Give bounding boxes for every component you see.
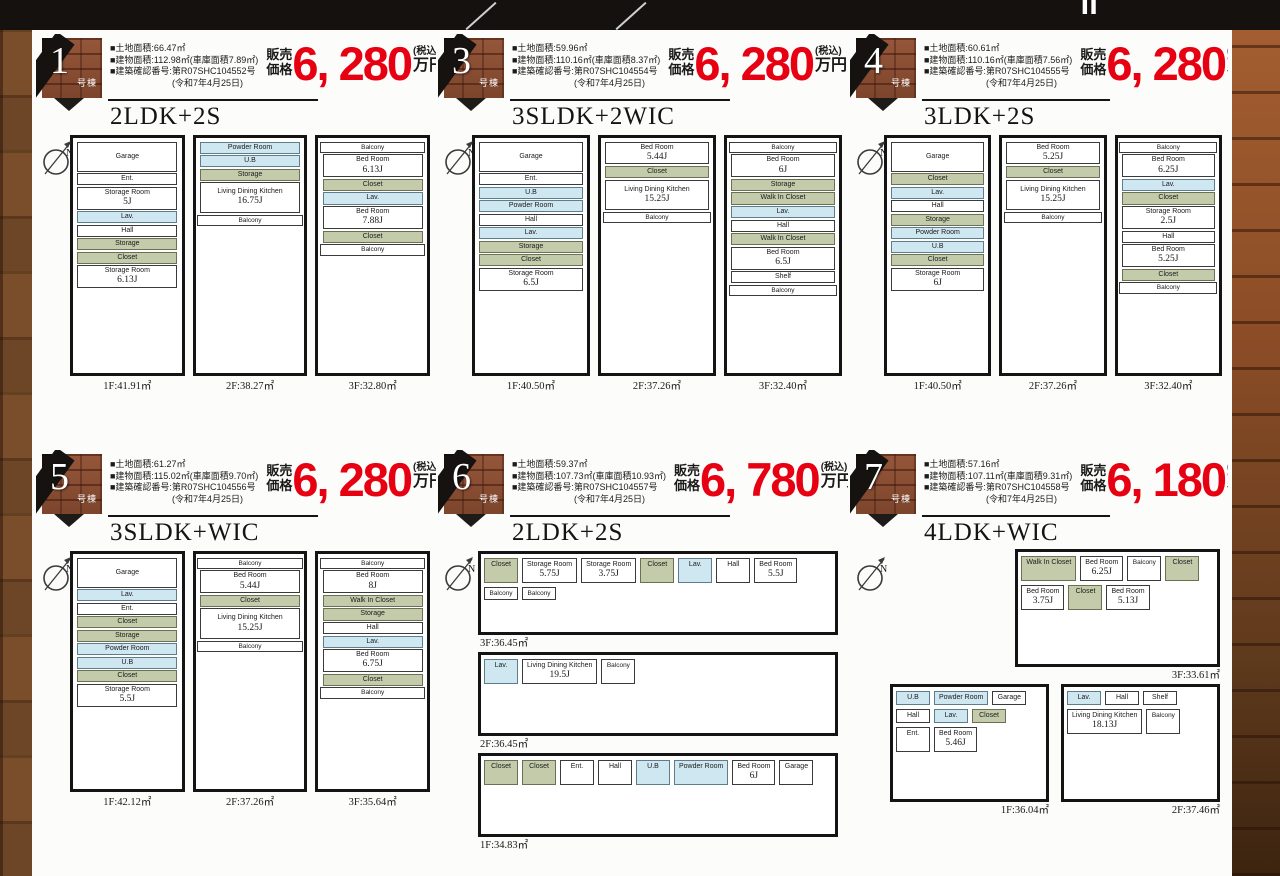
room-name: U.B bbox=[901, 694, 925, 702]
room: Hall bbox=[479, 214, 582, 226]
room-name: Garage bbox=[997, 694, 1021, 702]
room-name: Balcony bbox=[321, 560, 425, 567]
room-size: 16.75J bbox=[201, 196, 299, 207]
header-divider bbox=[510, 515, 730, 517]
room-size: 19.5J bbox=[527, 670, 592, 681]
price-tax-note: (税込) bbox=[821, 462, 848, 473]
room: Walk In Closet bbox=[731, 233, 834, 245]
room: Living Dining Kitchen18.13J bbox=[1067, 709, 1142, 734]
price-tax-note: (税込) bbox=[1227, 46, 1228, 57]
room-name: Balcony bbox=[1151, 712, 1175, 719]
room-name: Storage Room bbox=[586, 561, 631, 569]
price-block: 販売価格6, 280(税込)万円 bbox=[266, 458, 436, 503]
room: Closet bbox=[1165, 556, 1199, 581]
spec-line: (令和7年4月25日) bbox=[110, 78, 258, 90]
room-name: Balcony bbox=[198, 560, 302, 567]
svg-text:N: N bbox=[880, 564, 887, 575]
floor-area-caption: 2F:37.26㎡ bbox=[598, 376, 716, 393]
unit-label: 号棟 bbox=[891, 492, 911, 505]
room-size: 6.5J bbox=[732, 257, 833, 268]
balcony-area: Balcony bbox=[197, 215, 303, 226]
price-label-top: 販売 bbox=[1080, 48, 1106, 63]
room-name: Garage bbox=[892, 153, 983, 161]
room-name: Bed Room bbox=[939, 730, 972, 738]
room: Living Dining Kitchen19.5J bbox=[522, 659, 597, 684]
floor-plan: Powder RoomU.BStorageLiving Dining Kitch… bbox=[193, 135, 308, 393]
room: Closet bbox=[640, 558, 674, 583]
header-divider bbox=[108, 99, 318, 101]
price-block: 販売価格6, 180(税込)万円 bbox=[1080, 458, 1228, 503]
room-name: Closet bbox=[489, 561, 513, 569]
room-name: U.B bbox=[892, 243, 983, 251]
price-label-top: 販売 bbox=[668, 48, 694, 63]
room-name: Walk In Closet bbox=[1026, 559, 1071, 567]
room-size: 5.5J bbox=[78, 694, 176, 705]
room-name: Balcony bbox=[606, 662, 630, 669]
balcony-area: Balcony bbox=[601, 659, 635, 684]
floor-plans: GarageClosetLav.HallStoragePowder RoomU.… bbox=[884, 135, 1222, 393]
room-name: Lav. bbox=[78, 591, 176, 599]
price-unit: 万円 bbox=[413, 57, 436, 75]
price-block: 販売価格6, 280(税込)万円 bbox=[1080, 42, 1228, 87]
room-name: Bed Room bbox=[732, 156, 833, 164]
compass-icon: N bbox=[854, 552, 890, 594]
room-name: Powder Room bbox=[480, 202, 581, 210]
price-label-bottom: 価格 bbox=[266, 63, 292, 78]
room: Bed Room5.13J bbox=[1106, 585, 1149, 610]
balcony-area: Balcony bbox=[320, 687, 426, 698]
room: Closet bbox=[891, 173, 984, 185]
spec-line: ■建物面積:112.98㎡(車庫面積7.89㎡) bbox=[110, 55, 258, 67]
room: Powder Room bbox=[674, 760, 728, 785]
floor-area-caption: 3F:35.64㎡ bbox=[315, 792, 430, 809]
room-name: Storage bbox=[732, 181, 833, 189]
room-name: Walk In Closet bbox=[732, 194, 833, 202]
floor-plan-box: BalconyBed Room6.25JLav.ClosetStorage Ro… bbox=[1115, 135, 1222, 376]
room-name: U.B bbox=[480, 189, 581, 197]
room: Bed Room8J bbox=[323, 570, 423, 593]
room-size: 5J bbox=[78, 197, 176, 208]
price-tax-note: (税込) bbox=[413, 46, 436, 57]
room-name: Lav. bbox=[892, 189, 983, 197]
room: Powder Room bbox=[200, 142, 300, 154]
floor-plan-box: GarageClosetLav.HallStoragePowder RoomU.… bbox=[884, 135, 991, 376]
header-divider bbox=[510, 99, 730, 101]
room-name: Storage bbox=[324, 610, 422, 618]
price-tax-note: (税込) bbox=[1227, 462, 1228, 473]
room-name: Living Dining Kitchen bbox=[606, 186, 707, 194]
floor-area-caption: 2F:37.46㎡ bbox=[1061, 802, 1220, 817]
room-name: Closet bbox=[324, 233, 422, 241]
room-size: 15.25J bbox=[1007, 194, 1098, 205]
floor-plan: GarageEnt.Storage Room5JLav.HallStorageC… bbox=[70, 135, 185, 393]
floor-plan: BalconyBed Room5.44JClosetLiving Dining … bbox=[193, 551, 308, 809]
room-name: Garage bbox=[78, 569, 176, 577]
floor-plan-box: GarageEnt.U.BPowder RoomHallLav.StorageC… bbox=[472, 135, 590, 376]
unit-number: 7 bbox=[864, 458, 883, 496]
room-name: Bed Room bbox=[324, 208, 422, 216]
price-suffix: (税込)万円 bbox=[413, 46, 436, 75]
room: Storage Room6.5J bbox=[479, 268, 582, 291]
card-header: 7号棟■土地面積:57.16㎡■建物面積:107.11㎡(車庫面積9.31㎡)■… bbox=[850, 450, 1228, 514]
room: U.B bbox=[896, 691, 930, 705]
floor-plan-box: ClosetStorage Room5.75JStorage Room3.75J… bbox=[478, 551, 838, 635]
room: Closet bbox=[484, 558, 518, 583]
card-header: 6号棟■土地面積:59.37㎡■建物面積:107.73㎡(車庫面積10.93㎡)… bbox=[438, 450, 848, 514]
room: Lav. bbox=[77, 211, 177, 223]
floor-plan-row: U.BPowder RoomGarageHallLav.ClosetEnt.Be… bbox=[890, 684, 1220, 817]
room: Closet bbox=[323, 674, 423, 686]
price-label-bottom: 価格 bbox=[668, 63, 694, 78]
room-name: Balcony bbox=[321, 689, 425, 696]
room: Lav. bbox=[323, 636, 423, 648]
room: Lav. bbox=[678, 558, 712, 583]
room-name: Closet bbox=[489, 763, 513, 771]
floor-plan-box: ClosetClosetEnt.HallU.BPowder RoomBed Ro… bbox=[478, 753, 838, 837]
price-block: 販売価格6, 280(税込)万円 bbox=[668, 42, 847, 87]
room-name: Hall bbox=[480, 216, 581, 224]
room: Storage Room2.5J bbox=[1122, 206, 1215, 229]
room-name: Balcony bbox=[198, 217, 302, 224]
room-name: Balcony bbox=[489, 590, 513, 597]
room-size: 5.46J bbox=[939, 738, 972, 749]
floor-area-caption: 3F:32.80㎡ bbox=[315, 376, 430, 393]
room-name: Storage Room bbox=[527, 561, 572, 569]
room-name: Ent. bbox=[565, 763, 589, 771]
room: Closet bbox=[484, 760, 518, 785]
room-name: Balcony bbox=[527, 590, 551, 597]
cards-grid: 1号棟■土地面積:66.47㎡■建物面積:112.98㎡(車庫面積7.89㎡)■… bbox=[32, 30, 1232, 876]
room: Storage bbox=[200, 169, 300, 181]
floor-plan: GarageEnt.U.BPowder RoomHallLav.StorageC… bbox=[472, 135, 590, 393]
room: Living Dining Kitchen15.25J bbox=[200, 608, 300, 639]
room-name: Bed Room bbox=[1007, 144, 1098, 152]
room-name: Hall bbox=[1123, 233, 1214, 241]
room: Bed Room6.25J bbox=[1122, 154, 1215, 177]
floor-plan: Bed Room5.44JClosetLiving Dining Kitchen… bbox=[598, 135, 716, 393]
spec-line: ■土地面積:59.37㎡ bbox=[512, 459, 666, 471]
plan-type: 2LDK+2S bbox=[512, 519, 848, 547]
room: U.B bbox=[891, 241, 984, 253]
spec-line: ■建築確認番号:第R07SHC104552号 bbox=[110, 66, 258, 78]
room: U.B bbox=[636, 760, 670, 785]
room: Hall bbox=[896, 709, 930, 723]
price-unit: 万円 bbox=[413, 473, 436, 491]
balcony-area: Balcony bbox=[197, 641, 303, 652]
property-card: 1号棟■土地面積:66.47㎡■建物面積:112.98㎡(車庫面積7.89㎡)■… bbox=[36, 34, 436, 446]
room: Garage bbox=[77, 558, 177, 588]
room-name: Hall bbox=[901, 712, 925, 720]
spec-line: ■土地面積:61.27㎡ bbox=[110, 459, 258, 471]
floor-plan-box: GarageLav.Ent.ClosetStoragePowder RoomU.… bbox=[70, 551, 185, 792]
room: Lav. bbox=[484, 659, 518, 684]
room-name: Hall bbox=[732, 222, 833, 230]
room-size: 15.25J bbox=[201, 623, 299, 634]
room: Bed Room3.75J bbox=[1021, 585, 1064, 610]
balcony-area: Balcony bbox=[197, 558, 303, 569]
header-bar: Ⅱ bbox=[0, 0, 1280, 30]
floor-area-caption: 1F:42.12㎡ bbox=[70, 792, 185, 809]
room: Closet bbox=[323, 179, 423, 191]
unit-number: 6 bbox=[452, 458, 471, 496]
price-suffix: (税込)万円 bbox=[815, 46, 847, 75]
floor-area-caption: 1F:36.04㎡ bbox=[890, 802, 1049, 817]
room: Powder Room bbox=[891, 227, 984, 239]
floor-plan: BalconyBed Room6JStorageWalk In ClosetLa… bbox=[724, 135, 842, 393]
room-size: 6.75J bbox=[324, 659, 422, 670]
room: Bed Room6J bbox=[732, 760, 775, 785]
room-name: Storage Room bbox=[480, 270, 581, 278]
room-name: Storage bbox=[78, 240, 176, 248]
room-name: Storage Room bbox=[1123, 208, 1214, 216]
floor-plan: Bed Room5.25JClosetLiving Dining Kitchen… bbox=[999, 135, 1106, 393]
compass-icon: N bbox=[40, 552, 76, 594]
room: Bed Room5.44J bbox=[200, 570, 300, 593]
room: Closet bbox=[77, 670, 177, 682]
room-name: Closet bbox=[78, 672, 176, 680]
header-divider bbox=[108, 515, 318, 517]
price-block: 販売価格6, 280(税込)万円 bbox=[266, 42, 436, 87]
spec-line: ■土地面積:59.96㎡ bbox=[512, 43, 660, 55]
floor-plan: U.BPowder RoomGarageHallLav.ClosetEnt.Be… bbox=[890, 684, 1049, 817]
room-name: Balcony bbox=[1005, 214, 1101, 221]
spec-line: ■建物面積:107.73㎡(車庫面積10.93㎡) bbox=[512, 471, 666, 483]
room-name: Bed Room bbox=[324, 156, 422, 164]
price-label-top: 販売 bbox=[1080, 464, 1106, 479]
room: Walk In Closet bbox=[1021, 556, 1076, 581]
room-name: Lav. bbox=[78, 213, 176, 221]
spec-line: ■土地面積:60.61㎡ bbox=[924, 43, 1072, 55]
floor-plans: ClosetStorage Room5.75JStorage Room3.75J… bbox=[478, 551, 838, 852]
room: Lav. bbox=[731, 206, 834, 218]
room-name: Closet bbox=[645, 561, 669, 569]
room-name: Bed Room bbox=[1123, 246, 1214, 254]
room-name: Lav. bbox=[324, 194, 422, 202]
room-name: Balcony bbox=[730, 144, 837, 151]
svg-text:N: N bbox=[468, 564, 475, 575]
room-name: Closet bbox=[78, 618, 176, 626]
floor-plan-box: BalconyBed Room6.13JClosetLav.Bed Room7.… bbox=[315, 135, 430, 376]
room-name: Balcony bbox=[321, 144, 425, 151]
room-name: Bed Room bbox=[1026, 588, 1059, 596]
room-name: Ent. bbox=[480, 175, 581, 183]
room-size: 7.88J bbox=[324, 216, 422, 227]
room-name: Hall bbox=[78, 227, 176, 235]
unit-badge: 5号棟 bbox=[42, 454, 102, 514]
room-name: Garage bbox=[78, 153, 176, 161]
room: Closet bbox=[323, 231, 423, 243]
price-suffix: (税込)万円 bbox=[1227, 46, 1228, 75]
room-name: Storage Room bbox=[892, 270, 983, 278]
room-name: Closet bbox=[527, 763, 551, 771]
property-card: 7号棟■土地面積:57.16㎡■建物面積:107.11㎡(車庫面積9.31㎡)■… bbox=[850, 450, 1228, 874]
room: Walk In Closet bbox=[323, 595, 423, 607]
floor-area-caption: 2F:38.27㎡ bbox=[193, 376, 308, 393]
price-label-bottom: 価格 bbox=[1080, 63, 1106, 78]
header-divider bbox=[922, 99, 1110, 101]
price-label-top: 販売 bbox=[674, 464, 700, 479]
balcony-area: Balcony bbox=[1127, 556, 1161, 581]
room: Storage bbox=[479, 241, 582, 253]
room: Ent. bbox=[479, 173, 582, 185]
floor-area-caption: 1F:41.91㎡ bbox=[70, 376, 185, 393]
room: Bed Room6.13J bbox=[323, 154, 423, 177]
room: Storage Room6.13J bbox=[77, 265, 177, 288]
room-size: 15.25J bbox=[606, 194, 707, 205]
floor-plan: ClosetClosetEnt.HallU.BPowder RoomBed Ro… bbox=[478, 753, 838, 852]
compass-icon: N bbox=[40, 136, 76, 178]
flyer-page: Ⅱ 1号棟■土地面積:66.47㎡■建物面積:112.98㎡(車庫面積7.89㎡… bbox=[0, 0, 1280, 876]
room-name: Lav. bbox=[324, 638, 422, 646]
room: Garage bbox=[779, 760, 813, 785]
room: Hall bbox=[891, 200, 984, 212]
price-value: 6, 280 bbox=[694, 42, 813, 87]
room-size: 6.13J bbox=[324, 165, 422, 176]
room-name: Lav. bbox=[489, 662, 513, 670]
plan-type: 4LDK+WIC bbox=[924, 519, 1228, 547]
specs-list: ■土地面積:61.27㎡■建物面積:115.02㎡(車庫面積9.70㎡)■建築確… bbox=[110, 459, 258, 506]
room: Storage bbox=[323, 608, 423, 620]
room-name: Bed Room bbox=[759, 561, 792, 569]
floor-area-caption: 2F:37.26㎡ bbox=[193, 792, 308, 809]
room-size: 6.25J bbox=[1085, 567, 1118, 578]
spec-line: ■建築確認番号:第R07SHC104554号 bbox=[512, 66, 660, 78]
price-suffix: (税込)万円 bbox=[413, 462, 436, 491]
room: Storage bbox=[891, 214, 984, 226]
room-name: Balcony bbox=[730, 287, 837, 294]
card-header: 1号棟■土地面積:66.47㎡■建物面積:112.98㎡(車庫面積7.89㎡)■… bbox=[36, 34, 436, 98]
compass-icon: N bbox=[442, 136, 478, 178]
room: Powder Room bbox=[77, 643, 177, 655]
room: Lav. bbox=[77, 589, 177, 601]
room-name: Closet bbox=[892, 256, 983, 264]
floor-plans: GarageLav.Ent.ClosetStoragePowder RoomU.… bbox=[70, 551, 430, 809]
room-name: Walk In Closet bbox=[324, 597, 422, 605]
unit-label: 号棟 bbox=[891, 76, 911, 89]
floor-plans: Walk In ClosetBed Room6.25JBalconyCloset… bbox=[890, 549, 1220, 817]
price-label: 販売価格 bbox=[674, 464, 700, 494]
balcony-area: Balcony bbox=[1146, 709, 1180, 734]
room-name: Bed Room bbox=[324, 572, 422, 580]
balcony-area: Balcony bbox=[484, 587, 518, 600]
room-name: Lav. bbox=[480, 229, 581, 237]
room: Closet bbox=[522, 760, 556, 785]
room-size: 8J bbox=[324, 581, 422, 592]
room: Closet bbox=[1068, 585, 1102, 610]
room-size: 6J bbox=[732, 165, 833, 176]
room-name: Closet bbox=[1170, 559, 1194, 567]
room: Storage Room5.75J bbox=[522, 558, 577, 583]
room: Living Dining Kitchen15.25J bbox=[605, 180, 708, 211]
room: Storage Room3.75J bbox=[581, 558, 636, 583]
floor-area-caption: 1F:40.50㎡ bbox=[472, 376, 590, 393]
room: Ent. bbox=[77, 603, 177, 615]
content-panel: 1号棟■土地面積:66.47㎡■建物面積:112.98㎡(車庫面積7.89㎡)■… bbox=[32, 30, 1232, 876]
specs-list: ■土地面積:57.16㎡■建物面積:107.11㎡(車庫面積9.31㎡)■建築確… bbox=[924, 459, 1072, 506]
price-value: 6, 280 bbox=[1106, 42, 1225, 87]
unit-number: 4 bbox=[864, 42, 883, 80]
room-name: Powder Room bbox=[679, 763, 723, 771]
specs-list: ■土地面積:60.61㎡■建物面積:110.16㎡(車庫面積7.56㎡)■建築確… bbox=[924, 43, 1072, 90]
floor-plan-top: Walk In ClosetBed Room6.25JBalconyCloset… bbox=[1015, 549, 1220, 682]
floor-plan: ClosetStorage Room5.75JStorage Room3.75J… bbox=[478, 551, 838, 650]
price-suffix: (税込)万円 bbox=[821, 462, 848, 491]
spec-line: ■建物面積:110.16㎡(車庫面積8.37㎡) bbox=[512, 55, 660, 67]
room-name: Walk In Closet bbox=[732, 235, 833, 243]
room-name: Storage bbox=[201, 171, 299, 179]
balcony-area: Balcony bbox=[729, 285, 838, 296]
room-name: Lav. bbox=[939, 712, 963, 720]
balcony-area: Balcony bbox=[522, 587, 556, 600]
room-name: Bed Room bbox=[201, 572, 299, 580]
property-card: 5号棟■土地面積:61.27㎡■建物面積:115.02㎡(車庫面積9.70㎡)■… bbox=[36, 450, 436, 874]
room: Shelf bbox=[1143, 691, 1177, 705]
floor-plan-box: BalconyBed Room5.44JClosetLiving Dining … bbox=[193, 551, 308, 792]
floor-plan: Walk In ClosetBed Room6.25JBalconyCloset… bbox=[1015, 549, 1220, 682]
room: Storage bbox=[77, 630, 177, 642]
floor-plan-box: Bed Room5.44JClosetLiving Dining Kitchen… bbox=[598, 135, 716, 376]
price-block: 販売価格6, 780(税込)万円 bbox=[674, 458, 848, 503]
floor-plan-box: GarageEnt.Storage Room5JLav.HallStorageC… bbox=[70, 135, 185, 376]
spec-line: ■建築確認番号:第R07SHC104558号 bbox=[924, 482, 1072, 494]
unit-label: 号棟 bbox=[479, 492, 499, 505]
room: Hall bbox=[716, 558, 750, 583]
room-size: 5.25J bbox=[1123, 254, 1214, 265]
room-name: Closet bbox=[977, 712, 1001, 720]
spec-line: ■建物面積:107.11㎡(車庫面積9.31㎡) bbox=[924, 471, 1072, 483]
floor-plan: BalconyBed Room8JWalk In ClosetStorageHa… bbox=[315, 551, 430, 809]
room: Hall bbox=[77, 225, 177, 237]
card-header: 5号棟■土地面積:61.27㎡■建物面積:115.02㎡(車庫面積9.70㎡)■… bbox=[36, 450, 436, 514]
room-size: 6J bbox=[892, 278, 983, 289]
floor-plan: BalconyBed Room6.13JClosetLav.Bed Room7.… bbox=[315, 135, 430, 393]
price-unit: 万円 bbox=[815, 57, 847, 75]
room-size: 5.5J bbox=[759, 569, 792, 580]
room-name: Living Dining Kitchen bbox=[1072, 712, 1137, 720]
header-divider bbox=[922, 515, 1110, 517]
room-size: 5.44J bbox=[201, 581, 299, 592]
room-name: Closet bbox=[480, 256, 581, 264]
balcony-area: Balcony bbox=[603, 212, 712, 223]
price-label: 販売価格 bbox=[1080, 48, 1106, 78]
room: Closet bbox=[1122, 269, 1215, 281]
unit-badge: 6号棟 bbox=[444, 454, 504, 514]
room-name: Powder Room bbox=[78, 645, 176, 653]
floor-plan: GarageClosetLav.HallStoragePowder RoomU.… bbox=[884, 135, 991, 393]
property-card: 4号棟■土地面積:60.61㎡■建物面積:110.16㎡(車庫面積7.56㎡)■… bbox=[850, 34, 1228, 446]
room-name: U.B bbox=[201, 157, 299, 165]
floor-plan-box: Bed Room5.25JClosetLiving Dining Kitchen… bbox=[999, 135, 1106, 376]
floor-plans: GarageEnt.U.BPowder RoomHallLav.StorageC… bbox=[472, 135, 842, 393]
floor-area-caption: 3F:32.40㎡ bbox=[724, 376, 842, 393]
room-name: Hall bbox=[892, 202, 983, 210]
room-name: Lav. bbox=[1072, 694, 1096, 702]
room: Closet bbox=[1006, 166, 1099, 178]
room: Storage Room6J bbox=[891, 268, 984, 291]
room-name: Ent. bbox=[901, 730, 925, 738]
room-name: Shelf bbox=[1148, 694, 1172, 702]
svg-text:N: N bbox=[66, 564, 73, 575]
floor-plan: Lav.Living Dining Kitchen19.5JBalcony2F:… bbox=[478, 652, 838, 751]
room: Walk In Closet bbox=[731, 192, 834, 204]
room-name: Hall bbox=[721, 561, 745, 569]
room-name: Ent. bbox=[78, 605, 176, 613]
spec-line: (令和7年4月25日) bbox=[512, 78, 660, 90]
room-name: Hall bbox=[1110, 694, 1134, 702]
room-name: Balcony bbox=[1120, 284, 1216, 291]
room-name: Storage bbox=[892, 216, 983, 224]
price-label: 販売価格 bbox=[266, 464, 292, 494]
